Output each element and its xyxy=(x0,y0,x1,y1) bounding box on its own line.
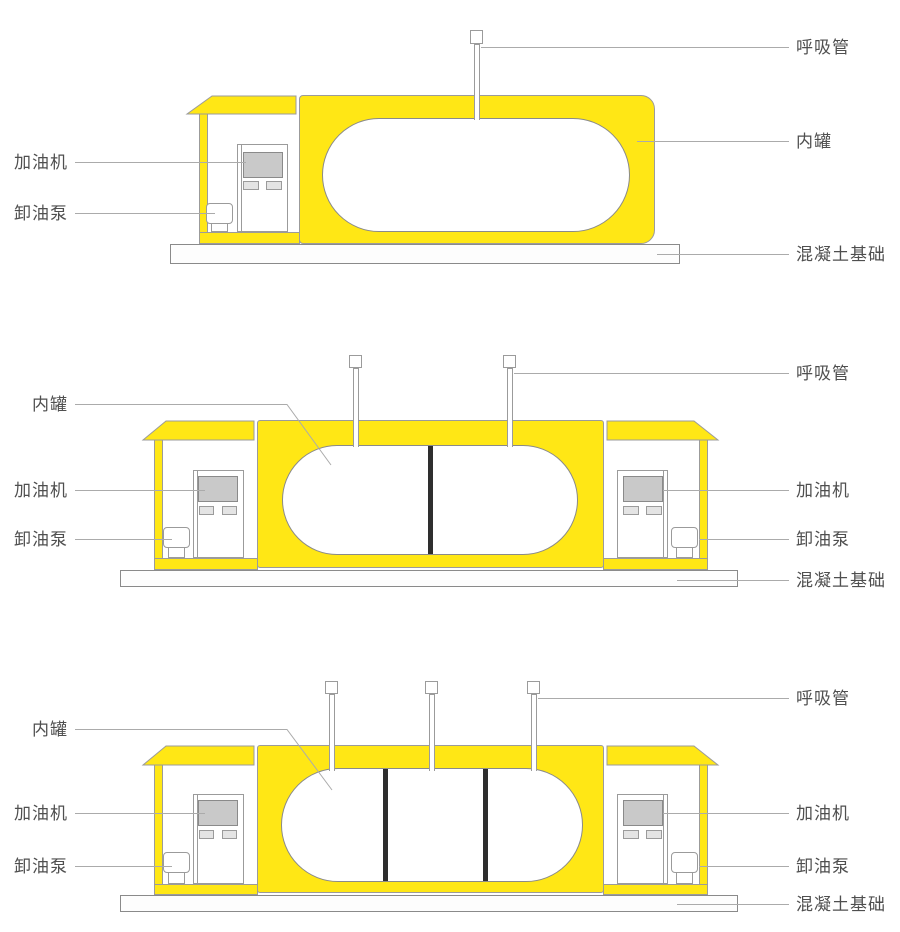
dispenser-button xyxy=(646,506,662,515)
dispenser-button xyxy=(222,506,237,515)
dispenser-button xyxy=(243,181,259,190)
breather-pipe xyxy=(429,694,435,771)
breather-pipe xyxy=(507,368,513,447)
cabin-roof xyxy=(143,746,254,765)
unloading-pump xyxy=(163,527,190,548)
label-inner-tank: 内罐 xyxy=(796,132,832,151)
label-breather-pipe: 呼吸管 xyxy=(796,38,850,57)
unloading-pump xyxy=(206,203,233,224)
label-breather-pipe: 呼吸管 xyxy=(796,364,850,383)
label-fuel-dispenser: 加油机 xyxy=(0,481,68,500)
pump-base xyxy=(676,548,693,558)
dispenser-button xyxy=(266,181,282,190)
dispenser-button xyxy=(222,830,237,839)
label-unloading-pump: 卸油泵 xyxy=(0,530,68,549)
pump-base xyxy=(168,548,185,558)
label-unloading-pump: 卸油泵 xyxy=(796,530,850,549)
label-inner-tank: 内罐 xyxy=(0,395,68,414)
unloading-pump xyxy=(671,852,698,873)
inner-tank xyxy=(281,768,583,882)
dispenser-screen xyxy=(243,152,283,178)
label-unloading-pump: 卸油泵 xyxy=(0,857,68,876)
breather-pipe-cap xyxy=(470,30,483,44)
cabin-roof xyxy=(143,421,254,440)
unloading-pump xyxy=(671,527,698,548)
label-fuel-dispenser: 加油机 xyxy=(796,804,850,823)
concrete-foundation xyxy=(170,244,680,264)
label-inner-tank: 内罐 xyxy=(0,720,68,739)
cabin-post xyxy=(154,764,163,885)
cabin-roof xyxy=(187,96,296,114)
dispenser-button xyxy=(623,506,639,515)
breather-pipe xyxy=(474,44,480,120)
dispenser-button xyxy=(199,830,214,839)
label-fuel-dispenser: 加油机 xyxy=(0,804,68,823)
cabin-floor xyxy=(154,558,258,570)
breather-pipe-cap xyxy=(349,355,362,368)
pump-base xyxy=(211,224,228,232)
dispenser-button xyxy=(646,830,662,839)
inner-tank xyxy=(322,118,630,232)
dispenser-screen xyxy=(198,476,238,502)
cabin-roof xyxy=(607,421,718,440)
breather-pipe-cap xyxy=(325,681,338,694)
label-fuel-dispenser: 加油机 xyxy=(796,481,850,500)
dispenser-button xyxy=(199,506,214,515)
label-breather-pipe: 呼吸管 xyxy=(796,689,850,708)
compartment-divider xyxy=(428,446,433,554)
dispenser-door-line xyxy=(663,794,664,884)
breather-pipe xyxy=(531,694,537,771)
dispenser-button xyxy=(623,830,639,839)
pump-base xyxy=(168,873,185,884)
breather-pipe xyxy=(353,368,359,447)
cabin-roof xyxy=(607,746,718,765)
label-fuel-dispenser: 加油机 xyxy=(0,153,68,172)
unloading-pump xyxy=(163,852,190,873)
breather-pipe-cap xyxy=(503,355,516,368)
label-concrete-foundation: 混凝土基础 xyxy=(796,571,886,590)
label-unloading-pump: 卸油泵 xyxy=(0,204,68,223)
label-concrete-foundation: 混凝土基础 xyxy=(796,895,886,914)
dispenser-screen xyxy=(623,476,663,502)
cabin-floor xyxy=(603,558,708,570)
compartment-divider xyxy=(383,769,388,881)
label-concrete-foundation: 混凝土基础 xyxy=(796,245,886,264)
cabin-floor xyxy=(603,884,708,895)
concrete-foundation xyxy=(120,895,738,912)
dispenser-door-line xyxy=(241,144,242,232)
concrete-foundation xyxy=(120,570,738,587)
dispenser-door-line xyxy=(663,470,664,558)
pump-base xyxy=(676,873,693,884)
cabin-floor xyxy=(154,884,258,895)
compartment-divider xyxy=(483,769,488,881)
cabin-post xyxy=(699,439,708,559)
cabin-floor xyxy=(199,232,300,244)
dispenser-screen xyxy=(198,800,238,826)
dispenser-screen xyxy=(623,800,663,826)
cabin-post xyxy=(699,764,708,885)
breather-pipe-cap xyxy=(527,681,540,694)
cabin-post xyxy=(154,439,163,559)
skid-fuel-station-diagrams: 加油机 卸油泵 呼吸管 内罐 混凝土基础 内罐 加油机 卸油泵 呼吸管 加油机 … xyxy=(0,0,900,932)
breather-pipe-cap xyxy=(425,681,438,694)
breather-pipe xyxy=(329,694,335,771)
label-unloading-pump: 卸油泵 xyxy=(796,857,850,876)
